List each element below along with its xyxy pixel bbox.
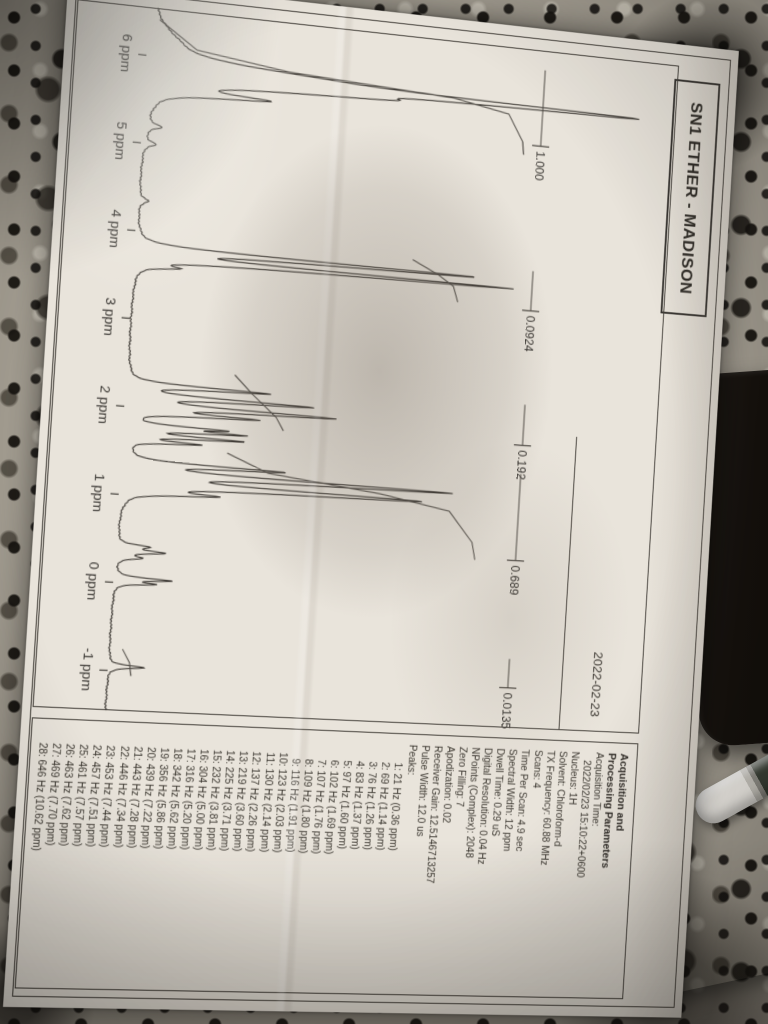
axis-label: 5 ppm (112, 121, 130, 161)
peak-index: 27 (48, 737, 63, 755)
integral-trace (154, 20, 530, 155)
axis-tick (116, 406, 124, 407)
integral-value-label: 1.000 (532, 151, 547, 182)
peak-index: 22 (116, 739, 131, 757)
peak-index: 17 (183, 742, 197, 760)
axis-tick (127, 230, 135, 231)
peak-index: 5 (340, 749, 354, 767)
parameters-list: Acquisition Time: 2022/02/23 15:10:22+06… (403, 745, 605, 992)
integral-value-label: 0.0924 (522, 315, 537, 352)
integral-bracket (508, 659, 510, 688)
integral-bracket (523, 405, 525, 446)
integral-trace (221, 453, 480, 560)
axis-label: 0 ppm (84, 561, 102, 600)
axis-label: 3 ppm (101, 297, 119, 337)
axis-tick (138, 54, 146, 55)
axis-label: 1 ppm (90, 473, 108, 512)
peak-index: 15 (209, 743, 223, 761)
peak-index: 11 (262, 745, 276, 763)
spectrum-line (104, 7, 642, 732)
peak-index: 12 (249, 745, 263, 763)
peak-index: 6 (327, 748, 341, 766)
axis-tick (133, 142, 141, 143)
peak-index: 8 (301, 747, 315, 765)
integral-tick (514, 445, 531, 446)
peak-index: 23 (103, 739, 118, 757)
axis-label: 4 ppm (106, 209, 124, 249)
peak-index: 14 (223, 744, 237, 762)
peak-index: 4 (353, 749, 367, 767)
integral-trace (121, 649, 133, 676)
acquisition-parameters-panel: Acquisition and Processing Parameters Ac… (15, 717, 639, 999)
peak-index: 13 (236, 744, 250, 762)
peak-index: 7 (314, 748, 328, 766)
axis-label: -1 ppm (78, 648, 96, 692)
integral-value-label: 0.192 (514, 450, 529, 481)
peak-index: 10 (275, 746, 289, 764)
integral-value-label: 0.0135 (499, 692, 514, 729)
photo-stage: SN1 ETHER - MADISON 2022-02-23 6 ppm5 pp… (0, 0, 768, 1024)
integral-tick (499, 687, 516, 688)
axis-tick (110, 494, 118, 495)
peak-index: 21 (129, 740, 143, 758)
peak-index: 9 (288, 747, 302, 765)
integral-value-label: 0.689 (507, 565, 522, 596)
axis-label: 6 ppm (118, 33, 136, 73)
peak-index: 1 (391, 751, 405, 768)
peak-index: 25 (75, 738, 90, 756)
peak-index: 28 (35, 736, 50, 754)
peak-index: 26 (62, 737, 77, 755)
peak-index: 2 (378, 750, 392, 768)
peak-index: 3 (366, 750, 380, 768)
axis-tick (122, 318, 130, 319)
peak-index: 18 (170, 742, 184, 760)
peak-index: 24 (89, 738, 104, 756)
peak-index: 16 (196, 743, 210, 761)
axis-label: 2 ppm (95, 385, 113, 425)
peak-index: 20 (143, 741, 157, 759)
integral-tick (522, 310, 539, 311)
integral-tick (507, 560, 524, 561)
nmr-printout-page: SN1 ETHER - MADISON 2022-02-23 6 ppm5 pp… (3, 0, 739, 1018)
integral-bracket (531, 271, 533, 311)
peak-index: 19 (156, 741, 170, 759)
integral-bracket (516, 474, 521, 560)
peaks-list: 1: 21 Hz (0.36 ppm)2: 69 Hz (1.14 ppm)3:… (20, 729, 405, 988)
